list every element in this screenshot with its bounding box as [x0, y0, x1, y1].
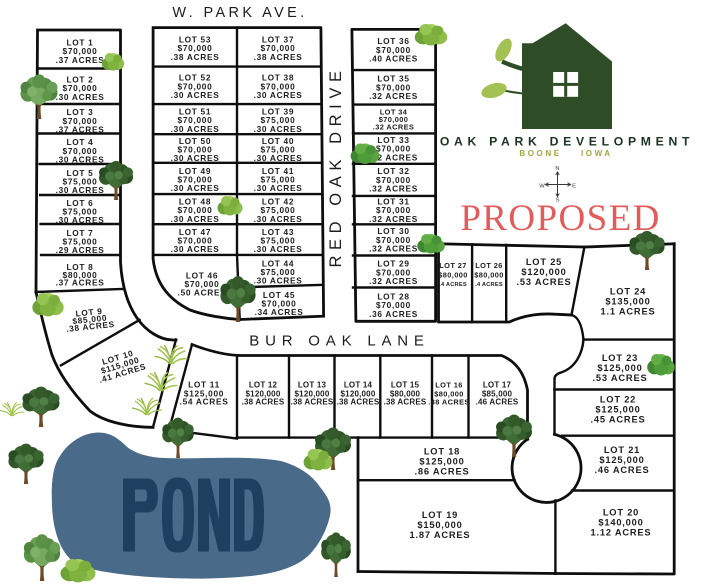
svg-text:$140,000: $140,000	[598, 518, 643, 528]
svg-text:PROPOSED: PROPOSED	[460, 198, 660, 239]
svg-text:$135,000: $135,000	[605, 297, 650, 307]
svg-text:1.87 ACRES: 1.87 ACRES	[410, 530, 471, 540]
svg-text:LOT 22: LOT 22	[600, 395, 636, 405]
svg-text:.4 ACRES: .4 ACRES	[439, 282, 467, 288]
svg-text:LOT 17: LOT 17	[483, 381, 512, 390]
svg-text:LOT 27: LOT 27	[439, 261, 466, 270]
svg-text:LOT 20: LOT 20	[603, 508, 639, 518]
svg-text:LOT 12: LOT 12	[249, 381, 278, 390]
svg-text:.32 ACRES: .32 ACRES	[373, 123, 415, 132]
svg-text:.32 ACRES: .32 ACRES	[369, 91, 418, 101]
svg-text:.36 ACRES: .36 ACRES	[369, 309, 418, 319]
svg-text:LOT 18: LOT 18	[424, 447, 460, 457]
svg-text:E: E	[572, 184, 576, 190]
svg-text:.32 ACRES: .32 ACRES	[369, 276, 418, 286]
svg-text:.30 ACRES: .30 ACRES	[171, 153, 220, 163]
svg-text:.30 ACRES: .30 ACRES	[171, 214, 220, 224]
svg-text:.30 ACRES: .30 ACRES	[56, 185, 105, 195]
svg-text:LOT 23: LOT 23	[602, 353, 638, 363]
svg-text:.38 ACRES: .38 ACRES	[291, 398, 334, 407]
svg-text:.30 ACRES: .30 ACRES	[56, 155, 105, 165]
svg-text:1.1 ACRES: 1.1 ACRES	[601, 306, 656, 316]
svg-text:LOT 16: LOT 16	[435, 381, 462, 390]
svg-text:.30 ACRES: .30 ACRES	[171, 244, 220, 254]
svg-text:N: N	[555, 166, 559, 172]
svg-text:1.12 ACRES: 1.12 ACRES	[591, 527, 652, 537]
svg-text:LOT 19: LOT 19	[422, 510, 458, 520]
svg-text:.30 ACRES: .30 ACRES	[171, 124, 220, 134]
svg-text:.32 ACRES: .32 ACRES	[369, 214, 418, 224]
svg-text:RED OAK DRIVE: RED OAK DRIVE	[327, 65, 345, 267]
svg-text:.38 ACRES: .38 ACRES	[171, 52, 220, 62]
svg-text:$80,000: $80,000	[474, 271, 504, 280]
svg-text:.46 ACRES: .46 ACRES	[595, 465, 650, 475]
svg-text:$80,000: $80,000	[438, 271, 468, 280]
svg-text:.37 ACRES: .37 ACRES	[56, 277, 105, 287]
svg-text:$125,000: $125,000	[419, 457, 464, 467]
svg-text:.46 ACRES: .46 ACRES	[476, 398, 519, 407]
svg-text:.32 ACRES: .32 ACRES	[369, 184, 418, 194]
svg-text:.37 ACRES: .37 ACRES	[56, 55, 105, 65]
svg-text:.30 ACRES: .30 ACRES	[56, 92, 105, 102]
svg-text:.30 ACRES: .30 ACRES	[254, 244, 303, 254]
svg-text:.37 ACRES: .37 ACRES	[56, 125, 105, 135]
svg-text:LOT 15: LOT 15	[391, 381, 420, 390]
svg-text:LOT 13: LOT 13	[298, 381, 327, 390]
svg-text:$125,000: $125,000	[599, 455, 644, 465]
svg-text:.38 ACRES: .38 ACRES	[384, 398, 427, 407]
svg-text:.40 ACRES: .40 ACRES	[369, 54, 418, 64]
svg-text:LOT 14: LOT 14	[344, 381, 373, 390]
svg-text:BUR OAK LANE: BUR OAK LANE	[249, 333, 429, 350]
svg-text:BOONE IOWA: BOONE IOWA	[519, 149, 612, 158]
svg-text:.29 ACRES: .29 ACRES	[56, 245, 105, 255]
svg-text:.50 ACRES: .50 ACRES	[178, 288, 227, 298]
svg-text:$125,000: $125,000	[597, 363, 642, 373]
svg-text:.54 ACRES: .54 ACRES	[180, 397, 229, 407]
svg-text:.30 ACRES: .30 ACRES	[56, 215, 105, 225]
svg-text:OAK PARK DEVELOPMENT: OAK PARK DEVELOPMENT	[440, 135, 694, 149]
svg-text:$150,000: $150,000	[417, 520, 462, 530]
svg-text:.30 ACRES: .30 ACRES	[254, 90, 303, 100]
svg-text:W: W	[539, 184, 545, 190]
svg-text:.30 ACRES: .30 ACRES	[254, 153, 303, 163]
svg-text:.38 ACRES: .38 ACRES	[428, 398, 470, 407]
svg-text:.38 ACRES: .38 ACRES	[337, 398, 380, 407]
svg-text:.30 ACRES: .30 ACRES	[254, 276, 303, 286]
svg-text:.30 ACRES: .30 ACRES	[171, 183, 220, 193]
svg-text:LOT 24: LOT 24	[610, 287, 646, 297]
svg-text:.30 ACRES: .30 ACRES	[254, 124, 303, 134]
svg-text:.45 ACRES: .45 ACRES	[591, 414, 646, 424]
svg-text:.32 ACRES: .32 ACRES	[369, 244, 418, 254]
svg-text:$125,000: $125,000	[595, 405, 640, 415]
svg-text:.30 ACRES: .30 ACRES	[254, 183, 303, 193]
svg-text:.30 ACRES: .30 ACRES	[254, 214, 303, 224]
svg-text:.38 ACRES: .38 ACRES	[242, 398, 285, 407]
svg-text:.53 ACRES: .53 ACRES	[593, 373, 648, 383]
svg-text:W. PARK AVE.: W. PARK AVE.	[172, 5, 307, 21]
svg-text:.34 ACRES: .34 ACRES	[255, 307, 304, 317]
svg-text:LOT 25: LOT 25	[526, 257, 562, 267]
svg-text:.4 ACRES: .4 ACRES	[475, 282, 503, 288]
svg-text:LOT 21: LOT 21	[604, 445, 640, 455]
svg-text:.53 ACRES: .53 ACRES	[517, 277, 572, 287]
svg-text:LOT 26: LOT 26	[475, 261, 502, 270]
svg-text:.86 ACRES: .86 ACRES	[415, 466, 470, 476]
svg-text:$120,000: $120,000	[521, 267, 566, 277]
svg-text:.30 ACRES: .30 ACRES	[171, 90, 220, 100]
svg-text:.38 ACRES: .38 ACRES	[254, 52, 303, 62]
